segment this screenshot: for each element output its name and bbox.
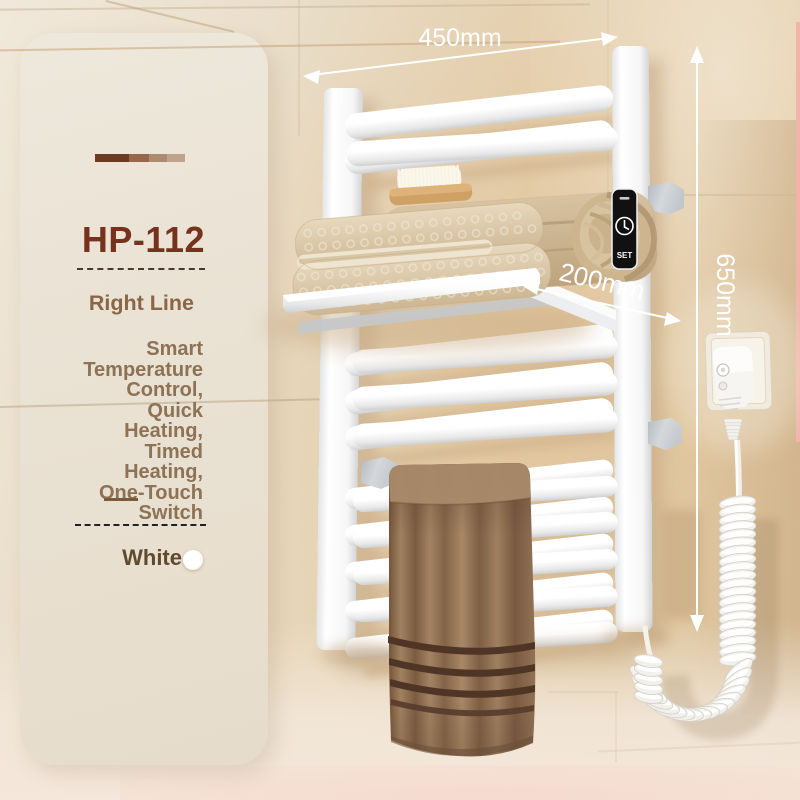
svg-text:450mm: 450mm (418, 24, 501, 52)
svg-text:SET: SET (617, 251, 633, 260)
svg-text:650mm: 650mm (711, 253, 739, 336)
